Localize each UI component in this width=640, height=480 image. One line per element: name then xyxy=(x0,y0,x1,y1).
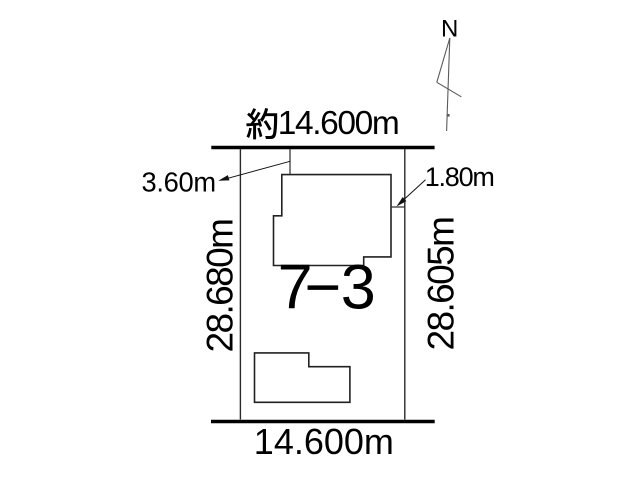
svg-text:28.605m: 28.605m xyxy=(421,218,462,351)
svg-text:28.680m: 28.680m xyxy=(200,220,241,353)
svg-text:−: − xyxy=(305,252,342,322)
svg-text:1.80m: 1.80m xyxy=(425,162,494,192)
svg-text:3: 3 xyxy=(341,252,376,322)
svg-text:14.600m: 14.600m xyxy=(254,421,394,462)
svg-text:14.600m: 14.600m xyxy=(278,105,399,142)
svg-text:3.60m: 3.60m xyxy=(142,167,216,198)
